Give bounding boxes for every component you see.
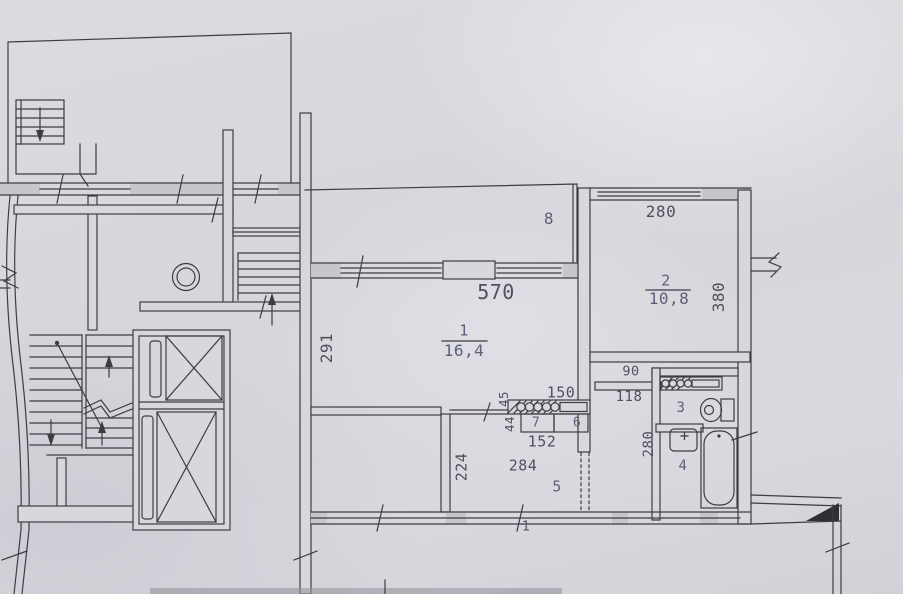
bathroom-vent-block-icon	[660, 377, 722, 390]
wall-break-icon	[2, 266, 18, 288]
southeast-extension	[751, 495, 849, 594]
room-2-area: 10,8	[649, 291, 690, 307]
dim-150: 150	[547, 386, 576, 401]
dim-44: 44	[504, 416, 517, 432]
dim-280-top: 280	[646, 204, 676, 220]
plan-linework	[0, 0, 903, 594]
room-1-area: 16,4	[444, 343, 485, 359]
balcony-window-wall	[311, 256, 590, 287]
dim-284: 284	[509, 459, 538, 474]
dim-118: 118	[616, 390, 643, 404]
room-4-label: 4	[679, 459, 688, 473]
room-7-label: 7	[532, 417, 540, 430]
hall-walls	[14, 130, 308, 330]
dim-291: 291	[319, 333, 335, 363]
west-curved-wall	[0, 196, 29, 594]
upper-stair-icon	[16, 100, 64, 144]
dim-90: 90	[622, 365, 639, 379]
dim-45: 45	[498, 391, 511, 407]
room-3-label: 3	[677, 401, 686, 415]
room-6-label: 6	[573, 417, 581, 430]
upper-landing	[16, 144, 96, 186]
dim-280-bath: 280	[642, 431, 656, 458]
wall-break-icon	[769, 253, 781, 277]
south-wall	[311, 505, 751, 531]
bathroom-block	[652, 368, 738, 520]
dim-152: 152	[528, 435, 557, 450]
stair-break-icon	[84, 400, 132, 418]
room-1-number: 1	[459, 324, 469, 339]
entry-stairs-icon	[238, 253, 302, 325]
room-2-number: 2	[661, 274, 671, 289]
room-8-label: 8	[544, 211, 554, 227]
floor-plan-scan: 8 570 1 16,4 291 280 2 10,8 380 90 118 1…	[0, 0, 903, 594]
upper-left-block	[8, 33, 291, 186]
room1-east-wall	[578, 188, 590, 511]
room-5-label: 5	[552, 480, 562, 495]
stairwell-icon	[18, 335, 135, 522]
north-wall-band	[0, 175, 308, 203]
bottom-edge-walls	[150, 580, 562, 594]
toilet-icon	[701, 399, 735, 422]
balcony-outline	[305, 184, 577, 263]
room2-north-wall	[590, 188, 751, 200]
dim-570: 570	[477, 282, 515, 302]
vent-circle-icon	[173, 264, 200, 291]
opening-dashed	[581, 453, 589, 511]
dim-380: 380	[711, 282, 727, 312]
dim-224: 224	[455, 453, 470, 482]
dim-1: 1	[522, 521, 530, 534]
elevator-block	[133, 330, 230, 530]
